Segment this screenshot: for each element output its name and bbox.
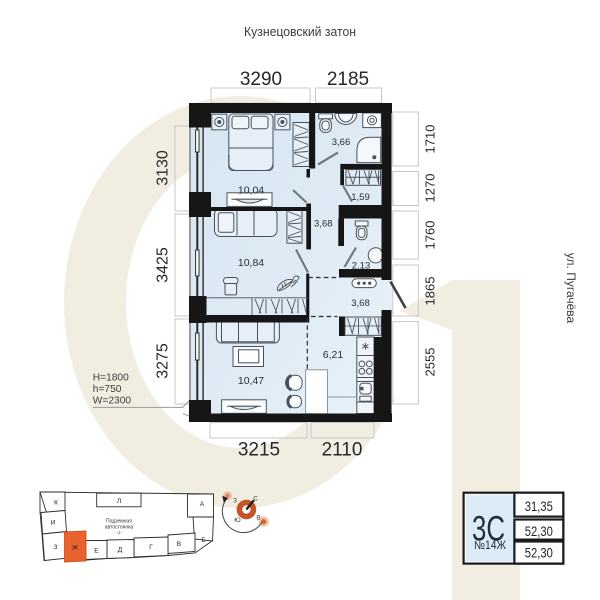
svg-text:10,04: 10,04 xyxy=(238,185,264,197)
svg-text:Г: Г xyxy=(149,544,153,551)
svg-text:W=2300: W=2300 xyxy=(93,396,132,407)
svg-text:2185: 2185 xyxy=(327,69,369,90)
svg-text:З: З xyxy=(233,498,237,505)
svg-text:Ю: Ю xyxy=(234,517,241,524)
svg-text:И: И xyxy=(51,520,56,527)
svg-text:2110: 2110 xyxy=(322,440,363,461)
svg-text:1760: 1760 xyxy=(423,221,438,250)
svg-text:ул. Пугачёва: ул. Пугачёва xyxy=(564,253,578,324)
svg-text:1270: 1270 xyxy=(423,174,438,203)
svg-text:З: З xyxy=(54,544,58,551)
svg-text:Д: Д xyxy=(118,547,123,554)
svg-text:3,68: 3,68 xyxy=(314,219,333,230)
svg-text:Ж: Ж xyxy=(72,545,78,552)
svg-text:В: В xyxy=(177,541,182,548)
svg-text:Б: Б xyxy=(201,537,205,544)
svg-text:В: В xyxy=(256,515,260,522)
svg-text:3,68: 3,68 xyxy=(351,298,370,309)
svg-text:31,35: 31,35 xyxy=(525,499,553,514)
svg-text:1865: 1865 xyxy=(423,277,438,306)
svg-text:6,21: 6,21 xyxy=(323,349,344,361)
svg-text:H=1800: H=1800 xyxy=(93,373,129,384)
svg-text:h=750: h=750 xyxy=(93,384,122,395)
svg-text:3425: 3425 xyxy=(155,247,172,283)
svg-text:10,47: 10,47 xyxy=(238,375,264,387)
svg-text:А: А xyxy=(200,501,205,508)
svg-text:Кузнецовский затон: Кузнецовский затон xyxy=(244,24,356,39)
svg-text:-1-: -1- xyxy=(116,530,122,535)
svg-text:1,59: 1,59 xyxy=(351,192,370,203)
svg-text:№14Ж: №14Ж xyxy=(474,540,506,552)
svg-text:3215: 3215 xyxy=(238,440,280,461)
svg-text:2,13: 2,13 xyxy=(352,261,371,272)
svg-text:2555: 2555 xyxy=(423,348,438,377)
svg-text:3130: 3130 xyxy=(155,150,172,186)
svg-text:3275: 3275 xyxy=(155,343,172,379)
svg-text:3,66: 3,66 xyxy=(332,137,351,148)
svg-text:10,84: 10,84 xyxy=(238,257,264,269)
svg-text:Е: Е xyxy=(94,548,99,555)
svg-text:С: С xyxy=(253,496,258,503)
svg-text:52,30: 52,30 xyxy=(525,524,553,539)
svg-text:К: К xyxy=(54,500,58,507)
svg-text:Л: Л xyxy=(117,498,121,505)
svg-text:52,30: 52,30 xyxy=(525,546,553,561)
svg-text:1710: 1710 xyxy=(423,125,438,154)
svg-text:3290: 3290 xyxy=(240,69,282,90)
